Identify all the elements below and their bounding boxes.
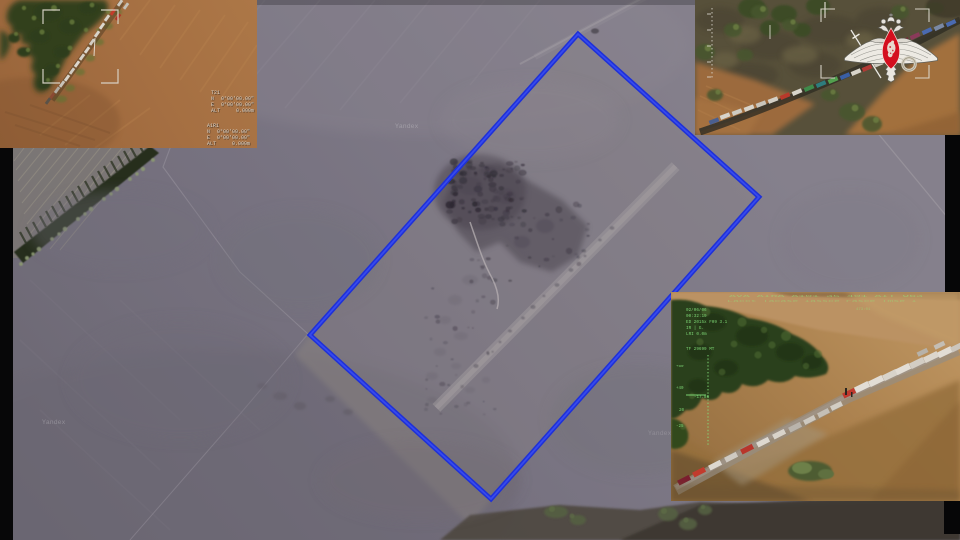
svg-text:0.000m: 0.000m <box>236 108 254 114</box>
svg-text:473:01: 473:01 <box>856 308 871 312</box>
svg-text:Lacct Tacase Iassce Fasce Tmse: Lacct Tacase Iassce Fasce Tmse I <box>727 300 917 304</box>
svg-text:ALT: ALT <box>211 108 220 114</box>
svg-text:LRI 0.0m: LRI 0.0m <box>686 332 707 337</box>
svg-text:IR | G.: IR | G. <box>686 326 704 331</box>
svg-text:-25: -25 <box>676 425 684 429</box>
svg-text:TF 29699 MT: TF 29699 MT <box>686 347 715 352</box>
svg-text:+40: +40 <box>676 387 684 391</box>
svg-text:Yandex: Yandex <box>42 419 66 426</box>
svg-text:20: 20 <box>679 409 685 413</box>
svg-text:ED 2015x F09 3.1: ED 2015x F09 3.1 <box>686 320 728 325</box>
svg-text:ALT: ALT <box>207 141 216 147</box>
svg-text:+50: +50 <box>676 365 684 369</box>
svg-text:AVA AIRA A101 35 401 AIT 963: AVA AIRA A101 35 401 AIT 963 <box>729 295 925 299</box>
svg-text:00:32:19: 00:32:19 <box>686 314 707 319</box>
svg-text:02/06/06: 02/06/06 <box>686 308 707 313</box>
svg-text:Yandex: Yandex <box>395 123 419 130</box>
svg-text:-17.86: -17.86 <box>694 396 710 400</box>
svg-text:0.000m: 0.000m <box>232 141 250 147</box>
